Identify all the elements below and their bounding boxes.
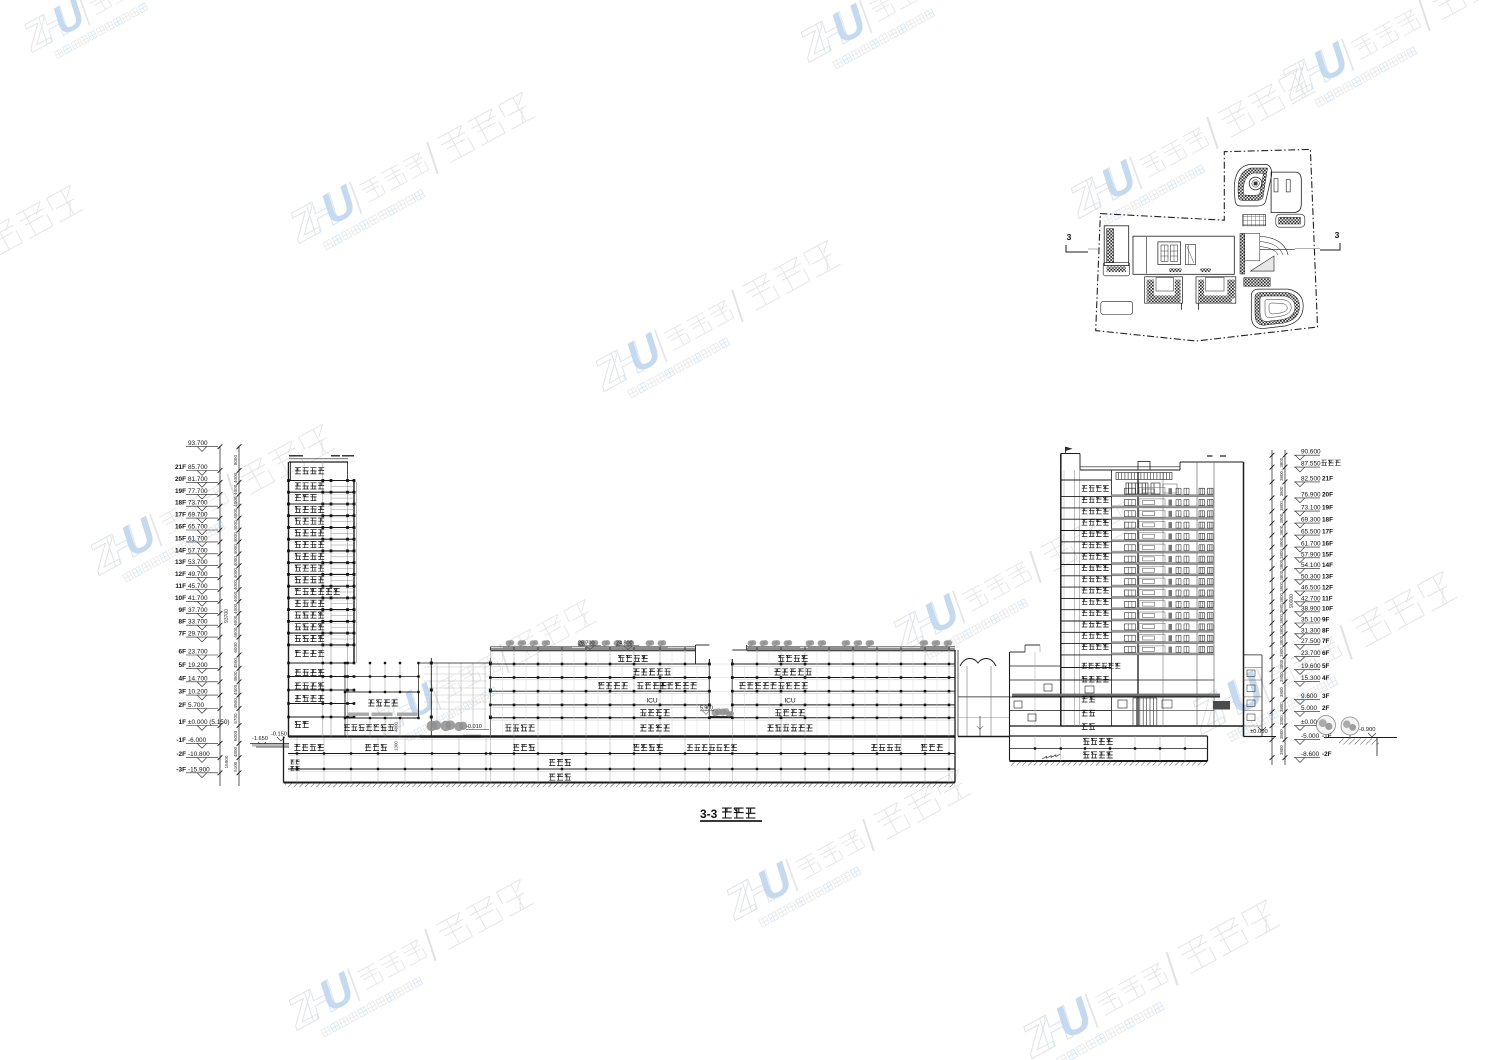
svg-text:61.700: 61.700 xyxy=(1301,541,1321,548)
svg-text:3-3: 3-3 xyxy=(700,807,718,821)
svg-text:-6.000: -6.000 xyxy=(188,737,207,744)
svg-text:33.700: 33.700 xyxy=(188,619,208,626)
svg-text:±0.000: ±0.000 xyxy=(1250,729,1268,735)
svg-text:21F: 21F xyxy=(175,464,186,471)
svg-text:17F: 17F xyxy=(1322,529,1333,536)
svg-text:69.700: 69.700 xyxy=(188,512,208,519)
svg-text:5.700: 5.700 xyxy=(188,702,204,709)
svg-text:-2F: -2F xyxy=(176,751,186,758)
svg-text:3800: 3800 xyxy=(1279,513,1284,523)
svg-text:45.700: 45.700 xyxy=(188,583,208,590)
svg-text:13F: 13F xyxy=(175,559,186,566)
svg-text:3800: 3800 xyxy=(1279,624,1284,634)
svg-text:53.700: 53.700 xyxy=(188,559,208,566)
svg-text:18F: 18F xyxy=(1322,517,1333,524)
svg-text:90.600: 90.600 xyxy=(1301,449,1321,456)
svg-text:90000: 90000 xyxy=(1289,594,1295,608)
svg-text:-5.000: -5.000 xyxy=(1301,733,1320,740)
svg-text:8F: 8F xyxy=(179,619,187,626)
svg-text:93.700: 93.700 xyxy=(188,440,208,447)
svg-text:57.700: 57.700 xyxy=(188,547,208,554)
svg-text:3800: 3800 xyxy=(1279,486,1284,496)
svg-text:19F: 19F xyxy=(1322,505,1333,512)
svg-text:15F: 15F xyxy=(1322,551,1333,558)
svg-text:3800: 3800 xyxy=(1279,559,1284,569)
svg-text:10F: 10F xyxy=(1322,605,1333,612)
svg-text:7F: 7F xyxy=(179,631,187,638)
svg-text:82.500: 82.500 xyxy=(1301,475,1321,482)
svg-text:3800: 3800 xyxy=(1279,537,1284,547)
svg-text:5700: 5700 xyxy=(233,713,238,724)
svg-text:-3F: -3F xyxy=(176,766,186,773)
svg-text:10F: 10F xyxy=(175,595,186,602)
svg-text:15.300: 15.300 xyxy=(1301,675,1321,682)
svg-text:1300: 1300 xyxy=(394,741,399,751)
svg-text:-15.900: -15.900 xyxy=(188,766,210,773)
svg-text:3800: 3800 xyxy=(1279,672,1284,682)
svg-text:46.500: 46.500 xyxy=(1301,585,1321,592)
svg-text:3F: 3F xyxy=(1322,693,1330,700)
svg-text:69.300: 69.300 xyxy=(1301,517,1321,524)
svg-text:10.200: 10.200 xyxy=(188,689,208,696)
svg-text:6F: 6F xyxy=(1322,650,1330,657)
svg-text:11F: 11F xyxy=(175,583,186,590)
svg-text:54.100: 54.100 xyxy=(1301,562,1321,569)
svg-text:16F: 16F xyxy=(1322,541,1333,548)
svg-text:81.700: 81.700 xyxy=(188,476,208,483)
svg-text:7F: 7F xyxy=(1322,638,1330,645)
svg-text:9F: 9F xyxy=(179,607,187,614)
svg-text:1F: 1F xyxy=(179,719,187,726)
svg-text:4500: 4500 xyxy=(233,658,238,669)
svg-text:8F: 8F xyxy=(1322,627,1330,634)
svg-text:5100: 5100 xyxy=(233,761,238,772)
svg-text:19F: 19F xyxy=(175,488,186,495)
svg-text:4000: 4000 xyxy=(233,484,238,495)
svg-text:65.700: 65.700 xyxy=(188,524,208,531)
svg-text:93700: 93700 xyxy=(224,609,230,623)
svg-text:-10.800: -10.800 xyxy=(188,751,210,758)
svg-text:19.200: 19.200 xyxy=(188,662,208,669)
svg-text:5F: 5F xyxy=(179,662,187,669)
svg-text:-2F: -2F xyxy=(1322,751,1332,758)
svg-text:85.700: 85.700 xyxy=(188,464,208,471)
svg-text:3800: 3800 xyxy=(1279,570,1284,580)
svg-text:3: 3 xyxy=(1067,232,1072,242)
svg-text:42.700: 42.700 xyxy=(1301,595,1321,602)
svg-text:3800: 3800 xyxy=(1279,729,1284,739)
svg-text:35.100: 35.100 xyxy=(1301,617,1321,624)
svg-text:±0.000 (5.150): ±0.000 (5.150) xyxy=(188,719,230,726)
svg-text:4000: 4000 xyxy=(233,508,238,519)
svg-text:4F: 4F xyxy=(1322,675,1330,682)
svg-text:37.700: 37.700 xyxy=(188,607,208,614)
svg-text:ICU: ICU xyxy=(784,697,796,704)
svg-text:3F: 3F xyxy=(179,689,187,696)
svg-text:57.900: 57.900 xyxy=(1301,551,1321,558)
svg-text:19.600: 19.600 xyxy=(1301,663,1321,670)
svg-text:4500: 4500 xyxy=(233,671,238,682)
svg-text:4000: 4000 xyxy=(233,603,238,614)
svg-text:9.600: 9.600 xyxy=(1301,693,1317,700)
svg-text:87.550: 87.550 xyxy=(1301,461,1321,468)
svg-text:2F: 2F xyxy=(1322,705,1330,712)
svg-text:29.700: 29.700 xyxy=(188,631,208,638)
svg-text:3800: 3800 xyxy=(1279,471,1284,481)
svg-text:ICU: ICU xyxy=(646,697,658,704)
svg-text:2F: 2F xyxy=(179,702,187,709)
svg-text:23.700: 23.700 xyxy=(1301,650,1321,657)
svg-text:73.100: 73.100 xyxy=(1301,505,1321,512)
svg-text:4F: 4F xyxy=(179,675,187,682)
svg-text:4000: 4000 xyxy=(233,627,238,638)
svg-text:5.000: 5.000 xyxy=(1301,705,1317,712)
svg-text:3: 3 xyxy=(1335,230,1340,240)
svg-text:15F: 15F xyxy=(175,535,186,542)
svg-text:16F: 16F xyxy=(175,524,186,531)
svg-text:3800: 3800 xyxy=(1279,647,1284,657)
svg-text:49.700: 49.700 xyxy=(188,571,208,578)
svg-text:3800: 3800 xyxy=(1279,687,1284,697)
svg-text:4000: 4000 xyxy=(233,544,238,555)
svg-text:3800: 3800 xyxy=(1279,702,1284,712)
svg-text:73.700: 73.700 xyxy=(188,500,208,507)
svg-text:31.300: 31.300 xyxy=(1301,627,1321,634)
svg-text:50.300: 50.300 xyxy=(1301,573,1321,580)
svg-text:65.500: 65.500 xyxy=(1301,529,1321,536)
svg-text:27.500: 27.500 xyxy=(1301,638,1321,645)
svg-text:3800: 3800 xyxy=(1279,525,1284,535)
svg-text:21F: 21F xyxy=(1322,475,1333,482)
svg-text:3800: 3800 xyxy=(1279,603,1284,613)
svg-text:41.700: 41.700 xyxy=(188,595,208,602)
svg-text:12F: 12F xyxy=(175,571,186,578)
svg-text:6000: 6000 xyxy=(233,730,238,741)
svg-text:18F: 18F xyxy=(175,500,186,507)
svg-text:6F: 6F xyxy=(179,649,187,656)
svg-text:76.900: 76.900 xyxy=(1301,491,1321,498)
svg-text:5F: 5F xyxy=(1322,663,1330,670)
svg-text:6000: 6000 xyxy=(233,642,238,653)
svg-text:3800: 3800 xyxy=(1279,501,1284,511)
svg-text:4800: 4800 xyxy=(394,722,399,732)
svg-text:4000: 4000 xyxy=(233,615,238,626)
svg-text:12F: 12F xyxy=(1322,585,1333,592)
svg-text:4000: 4000 xyxy=(233,579,238,590)
svg-text:11F: 11F xyxy=(1322,595,1333,602)
svg-text:3800: 3800 xyxy=(1279,457,1284,467)
svg-text:38.900: 38.900 xyxy=(1301,605,1321,612)
svg-text:3800: 3800 xyxy=(1279,745,1284,755)
svg-text:20F: 20F xyxy=(1322,491,1333,498)
svg-text:-1.650: -1.650 xyxy=(252,736,268,742)
svg-text:17F: 17F xyxy=(175,512,186,519)
svg-text:3800: 3800 xyxy=(1279,659,1284,669)
svg-text:4800: 4800 xyxy=(233,746,238,757)
svg-text:4500: 4500 xyxy=(233,684,238,695)
svg-text:14.700: 14.700 xyxy=(188,675,208,682)
svg-text:-8.600: -8.600 xyxy=(1301,751,1320,758)
svg-text:3800: 3800 xyxy=(1279,635,1284,645)
svg-text:3800: 3800 xyxy=(1279,581,1284,591)
svg-text:4000: 4000 xyxy=(233,520,238,531)
svg-text:4000: 4000 xyxy=(233,568,238,579)
svg-text:61.700: 61.700 xyxy=(188,535,208,542)
svg-text:20F: 20F xyxy=(175,476,186,483)
svg-text:4000: 4000 xyxy=(233,556,238,567)
svg-text:-0.900: -0.900 xyxy=(1359,727,1375,733)
svg-text:-1F: -1F xyxy=(176,737,186,744)
svg-text:4000: 4000 xyxy=(233,496,238,507)
svg-text:3800: 3800 xyxy=(1279,715,1284,725)
svg-text:4000: 4000 xyxy=(233,472,238,483)
svg-text:77.700: 77.700 xyxy=(188,488,208,495)
svg-text:23.700: 23.700 xyxy=(188,649,208,656)
svg-text:3800: 3800 xyxy=(1279,613,1284,623)
svg-text:4000: 4000 xyxy=(233,591,238,602)
svg-text:13F: 13F xyxy=(1322,573,1333,580)
svg-text:9F: 9F xyxy=(1322,617,1330,624)
svg-text:3800: 3800 xyxy=(1279,549,1284,559)
svg-text:14F: 14F xyxy=(175,547,186,554)
svg-text:4000: 4000 xyxy=(233,532,238,543)
svg-text:14F: 14F xyxy=(1322,562,1333,569)
svg-text:4500: 4500 xyxy=(233,698,238,709)
svg-text:15900: 15900 xyxy=(224,755,229,768)
svg-text:3800: 3800 xyxy=(1279,592,1284,602)
svg-text:8000: 8000 xyxy=(233,455,238,466)
svg-text:-0.150: -0.150 xyxy=(271,732,287,738)
